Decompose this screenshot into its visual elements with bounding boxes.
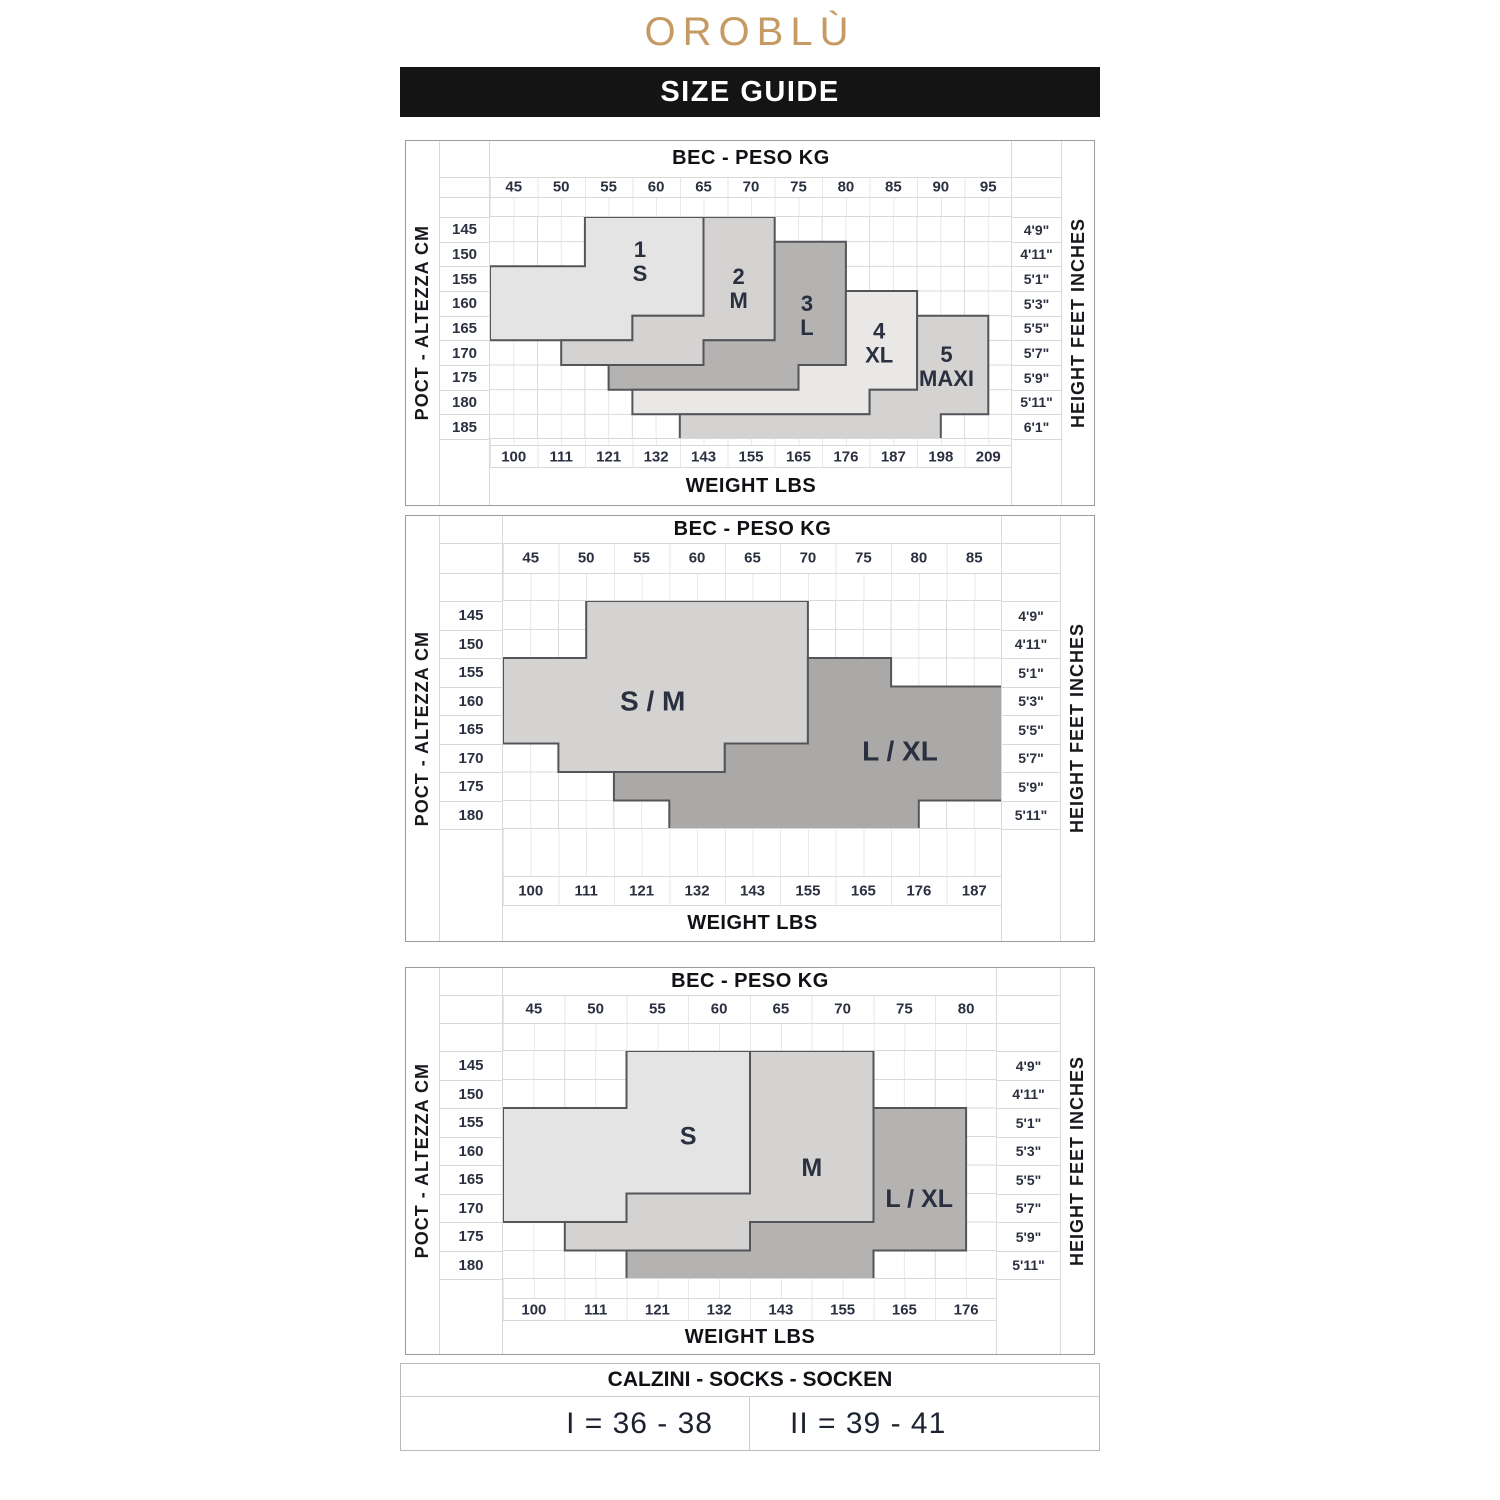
lbs-tick: 187 xyxy=(962,883,987,900)
axis-spacer xyxy=(1002,830,1060,941)
region-label-size-m: M xyxy=(801,1154,822,1182)
kg-tick: 50 xyxy=(587,1001,604,1018)
axis-spacer xyxy=(1002,516,1060,544)
lbs-tick: 132 xyxy=(644,448,669,465)
sub-grid-row xyxy=(503,574,1002,602)
left-axis-title-text: POCT - ALTEZZA CM xyxy=(412,225,433,420)
height-cm-tick: 145 xyxy=(440,1052,502,1081)
height-cm-tick: 160 xyxy=(440,688,502,717)
axis-spacer xyxy=(440,996,502,1024)
region-label-size-3-l: 3 xyxy=(801,292,813,317)
size-guide-banner-text: SIZE GUIDE xyxy=(660,76,839,109)
height-feet-axis: 4'9"4'11"5'1"5'3"5'5"5'7"5'9"5'11" xyxy=(996,968,1060,1354)
kg-tick: 60 xyxy=(689,550,706,567)
lbs-tick: 132 xyxy=(685,883,710,900)
axis-spacer xyxy=(1012,178,1061,198)
left-axis-title: POCT - ALTEZZA CM xyxy=(406,516,440,941)
region-label-size-s: S xyxy=(680,1123,697,1151)
size-region-plot: S / ML / XL xyxy=(503,601,1002,828)
kg-tick: 80 xyxy=(910,550,927,567)
lbs-tick: 143 xyxy=(740,883,765,900)
height-feet-tick: 5'11" xyxy=(997,1252,1060,1281)
height-feet-tick: 5'3" xyxy=(1002,688,1060,717)
lbs-tick: 121 xyxy=(596,448,621,465)
size-chart-1: POCT - ALTEZZA CM14515015516016517017518… xyxy=(405,140,1095,506)
lbs-tick: 165 xyxy=(786,448,811,465)
height-cm-tick: 165 xyxy=(440,716,502,745)
axis-spacer xyxy=(440,178,489,198)
axis-spacer xyxy=(440,1024,502,1052)
plot-column: BEC - PESO KG455055606570758085S / ML / … xyxy=(503,516,1002,941)
lbs-tick: 209 xyxy=(976,448,1001,465)
height-cm-tick: 180 xyxy=(440,391,489,416)
kg-tick: 65 xyxy=(744,550,761,567)
height-feet-tick: 5'7" xyxy=(997,1195,1060,1224)
height-cm-axis: 145150155160165170175180 xyxy=(440,516,503,941)
region-label-size-4-xl: XL xyxy=(865,343,893,368)
axis-spacer xyxy=(440,968,502,996)
weight-lbs-title: WEIGHT LBS xyxy=(490,468,1012,505)
axis-spacer xyxy=(997,996,1060,1024)
sub-grid-row xyxy=(490,439,1012,447)
weight-lbs-title: WEIGHT LBS xyxy=(503,1321,997,1354)
axis-spacer xyxy=(440,830,502,941)
lbs-tick: 121 xyxy=(645,1301,670,1318)
socks-size-cell-2: II = 39 - 41 xyxy=(750,1397,1099,1450)
height-feet-tick: 4'9" xyxy=(1012,218,1061,243)
height-cm-tick: 175 xyxy=(440,1223,502,1252)
kg-tick: 65 xyxy=(773,1001,790,1018)
socks-size-1-text: I = 36 - 38 xyxy=(566,1407,713,1441)
kg-tick: 60 xyxy=(648,179,665,196)
lbs-tick: 155 xyxy=(738,448,763,465)
lbs-tick: 100 xyxy=(521,1301,546,1318)
kg-tick: 70 xyxy=(743,179,760,196)
weight-kg-title: BEC - PESO KG xyxy=(490,141,1012,178)
size-region-plot: SML / XL xyxy=(503,1051,997,1278)
height-cm-tick: 155 xyxy=(440,267,489,292)
region-label-size-1-s: S xyxy=(633,261,648,286)
region-label-size-2-m: M xyxy=(729,288,747,313)
region-label-size-l-xl: L / XL xyxy=(885,1186,953,1214)
socks-table-body: I = 36 - 38 II = 39 - 41 xyxy=(401,1397,1099,1450)
height-feet-tick: 5'7" xyxy=(1002,745,1060,774)
weight-lbs-title: WEIGHT LBS xyxy=(503,906,1002,941)
height-cm-tick: 155 xyxy=(440,1109,502,1138)
kg-tick: 75 xyxy=(855,550,872,567)
height-cm-tick: 175 xyxy=(440,366,489,391)
lbs-tick: 121 xyxy=(629,883,654,900)
axis-spacer xyxy=(440,198,489,218)
size-guide-page: OROBLÙ SIZE GUIDE POCT - ALTEZZA CM14515… xyxy=(0,0,1500,1500)
axis-spacer xyxy=(997,1280,1060,1354)
plot-column: BEC - PESO KG4550556065707580SML / XL100… xyxy=(503,968,997,1354)
axis-spacer xyxy=(1012,440,1061,505)
height-feet-axis: 4'9"4'11"5'1"5'3"5'5"5'7"5'9"5'11" xyxy=(1001,516,1060,941)
left-axis-title: POCT - ALTEZZA CM xyxy=(406,141,440,505)
height-cm-tick: 165 xyxy=(440,317,489,342)
height-feet-axis: 4'9"4'11"5'1"5'3"5'5"5'7"5'9"5'11"6'1" xyxy=(1011,141,1061,505)
lbs-tick: 176 xyxy=(954,1301,979,1318)
right-axis-title: HEIGHT FEET INCHES xyxy=(1060,516,1094,941)
right-axis-title-text: HEIGHT FEET INCHES xyxy=(1068,218,1089,428)
kg-tick: 65 xyxy=(695,179,712,196)
height-feet-tick: 5'1" xyxy=(997,1109,1060,1138)
lbs-tick: 143 xyxy=(768,1301,793,1318)
lbs-tick: 143 xyxy=(691,448,716,465)
height-feet-tick: 4'11" xyxy=(1012,243,1061,268)
sub-grid-row xyxy=(503,1279,997,1300)
height-cm-tick: 150 xyxy=(440,243,489,268)
sub-grid-row xyxy=(490,198,1012,218)
axis-spacer xyxy=(1002,544,1060,574)
kg-tick: 70 xyxy=(800,550,817,567)
region-label-size-1-s: 1 xyxy=(634,237,646,262)
size-chart-2: POCT - ALTEZZA CM14515015516016517017518… xyxy=(405,515,1095,942)
height-cm-tick: 145 xyxy=(440,602,502,631)
height-cm-tick: 160 xyxy=(440,292,489,317)
height-cm-tick: 150 xyxy=(440,1081,502,1110)
height-feet-tick: 5'11" xyxy=(1012,391,1061,416)
lbs-tick: 111 xyxy=(574,883,597,900)
height-feet-tick: 4'9" xyxy=(997,1052,1060,1081)
height-cm-tick: 170 xyxy=(440,341,489,366)
axis-spacer xyxy=(1012,198,1061,218)
lbs-tick: 176 xyxy=(833,448,858,465)
kg-tick: 50 xyxy=(553,179,570,196)
kg-tick: 75 xyxy=(896,1001,913,1018)
height-feet-tick: 5'3" xyxy=(1012,292,1061,317)
height-feet-tick: 5'1" xyxy=(1002,659,1060,688)
axis-spacer xyxy=(440,141,489,178)
kg-tick: 80 xyxy=(838,179,855,196)
lbs-tick: 100 xyxy=(501,448,526,465)
height-cm-tick: 170 xyxy=(440,1195,502,1224)
height-feet-tick: 4'9" xyxy=(1002,602,1060,631)
height-cm-tick: 165 xyxy=(440,1166,502,1195)
height-cm-tick: 170 xyxy=(440,745,502,774)
height-cm-axis: 145150155160165170175180185 xyxy=(440,141,490,505)
left-axis-title-text: POCT - ALTEZZA CM xyxy=(412,1063,433,1258)
height-cm-tick: 180 xyxy=(440,802,502,831)
lbs-tick: 111 xyxy=(584,1301,607,1318)
kg-tick: 85 xyxy=(885,179,902,196)
axis-spacer xyxy=(997,1024,1060,1052)
region-label-size-s-m: S / M xyxy=(620,686,685,717)
left-axis-title: POCT - ALTEZZA CM xyxy=(406,968,440,1354)
height-feet-tick: 4'11" xyxy=(997,1081,1060,1110)
weight-kg-title: BEC - PESO KG xyxy=(503,968,997,996)
right-axis-title-text: HEIGHT FEET INCHES xyxy=(1067,623,1088,833)
size-region-plot: 1S2M3L4XL5MAXI xyxy=(490,217,1012,438)
weight-kg-ticks: 455055606570758085 xyxy=(503,544,1002,574)
size-chart-3: POCT - ALTEZZA CM14515015516016517017518… xyxy=(405,967,1095,1355)
lbs-tick: 111 xyxy=(549,448,572,465)
height-feet-tick: 5'9" xyxy=(997,1223,1060,1252)
kg-tick: 70 xyxy=(834,1001,851,1018)
height-cm-axis: 145150155160165170175180 xyxy=(440,968,503,1354)
axis-spacer xyxy=(997,968,1060,996)
kg-tick: 45 xyxy=(522,550,539,567)
height-feet-tick: 5'11" xyxy=(1002,802,1060,831)
lbs-tick: 198 xyxy=(928,448,953,465)
height-feet-tick: 5'7" xyxy=(1012,341,1061,366)
region-label-size-2-m: 2 xyxy=(733,264,745,289)
height-feet-tick: 5'5" xyxy=(1012,317,1061,342)
weight-kg-title: BEC - PESO KG xyxy=(503,516,1002,544)
brand-logo-text: OROBLÙ xyxy=(645,10,856,55)
weight-lbs-ticks: 100111121132143155165176 xyxy=(503,1299,997,1321)
region-label-size-l-xl: L / XL xyxy=(862,736,938,767)
height-feet-tick: 4'11" xyxy=(1002,631,1060,660)
lbs-tick: 100 xyxy=(518,883,543,900)
left-axis-title-text: POCT - ALTEZZA CM xyxy=(412,631,433,826)
kg-tick: 55 xyxy=(649,1001,666,1018)
axis-spacer xyxy=(1002,574,1060,602)
height-cm-tick: 145 xyxy=(440,218,489,243)
height-cm-tick: 160 xyxy=(440,1138,502,1167)
lbs-tick: 165 xyxy=(851,883,876,900)
lbs-tick: 176 xyxy=(906,883,931,900)
right-axis-title: HEIGHT FEET INCHES xyxy=(1060,968,1094,1354)
lbs-tick: 132 xyxy=(707,1301,732,1318)
size-guide-banner: SIZE GUIDE xyxy=(400,67,1100,117)
height-feet-tick: 5'9" xyxy=(1002,773,1060,802)
socks-size-2-text: II = 39 - 41 xyxy=(790,1407,946,1441)
kg-tick: 45 xyxy=(505,179,522,196)
axis-spacer xyxy=(440,1280,502,1354)
sub-grid-row xyxy=(503,1024,997,1052)
kg-tick: 50 xyxy=(578,550,595,567)
region-label-size-5-maxi: 5 xyxy=(940,342,952,367)
kg-tick: 80 xyxy=(958,1001,975,1018)
brand-logo: OROBLÙ xyxy=(400,6,1100,58)
axis-spacer xyxy=(440,574,502,602)
height-feet-tick: 5'9" xyxy=(1012,366,1061,391)
height-cm-tick: 150 xyxy=(440,631,502,660)
weight-lbs-ticks: 100111121132143155165176187198209 xyxy=(490,446,1012,468)
weight-kg-ticks: 4550556065707580859095 xyxy=(490,178,1012,198)
height-feet-tick: 5'3" xyxy=(997,1138,1060,1167)
height-feet-tick: 5'1" xyxy=(1012,267,1061,292)
lbs-tick: 155 xyxy=(795,883,820,900)
kg-tick: 85 xyxy=(966,550,983,567)
kg-tick: 90 xyxy=(932,179,949,196)
height-cm-tick: 180 xyxy=(440,1252,502,1281)
kg-tick: 60 xyxy=(711,1001,728,1018)
height-cm-tick: 175 xyxy=(440,773,502,802)
kg-tick: 75 xyxy=(790,179,807,196)
plot-column: BEC - PESO KG45505560657075808590951S2M3… xyxy=(490,141,1012,505)
sub-grid-row xyxy=(503,829,1002,878)
weight-lbs-ticks: 100111121132143155165176187 xyxy=(503,877,1002,906)
socks-table-title: CALZINI - SOCKS - SOCKEN xyxy=(401,1364,1099,1397)
axis-spacer xyxy=(440,516,502,544)
height-feet-tick: 6'1" xyxy=(1012,415,1061,440)
axis-spacer xyxy=(1012,141,1061,178)
right-axis-title-text: HEIGHT FEET INCHES xyxy=(1067,1056,1088,1266)
lbs-tick: 187 xyxy=(881,448,906,465)
height-feet-tick: 5'5" xyxy=(1002,716,1060,745)
region-label-size-4-xl: 4 xyxy=(873,319,886,344)
axis-spacer xyxy=(440,440,489,505)
axis-spacer xyxy=(440,544,502,574)
lbs-tick: 155 xyxy=(830,1301,855,1318)
height-cm-tick: 155 xyxy=(440,659,502,688)
kg-tick: 55 xyxy=(633,550,650,567)
lbs-tick: 165 xyxy=(892,1301,917,1318)
kg-tick: 55 xyxy=(600,179,617,196)
kg-tick: 45 xyxy=(526,1001,543,1018)
kg-tick: 95 xyxy=(980,179,997,196)
socks-size-table: CALZINI - SOCKS - SOCKEN I = 36 - 38 II … xyxy=(400,1363,1100,1451)
region-label-size-5-maxi: MAXI xyxy=(919,366,974,391)
height-cm-tick: 185 xyxy=(440,415,489,440)
height-feet-tick: 5'5" xyxy=(997,1166,1060,1195)
region-label-size-3-l: L xyxy=(800,316,813,341)
socks-size-cell-1: I = 36 - 38 xyxy=(401,1397,750,1450)
right-axis-title: HEIGHT FEET INCHES xyxy=(1061,141,1095,505)
weight-kg-ticks: 4550556065707580 xyxy=(503,996,997,1024)
